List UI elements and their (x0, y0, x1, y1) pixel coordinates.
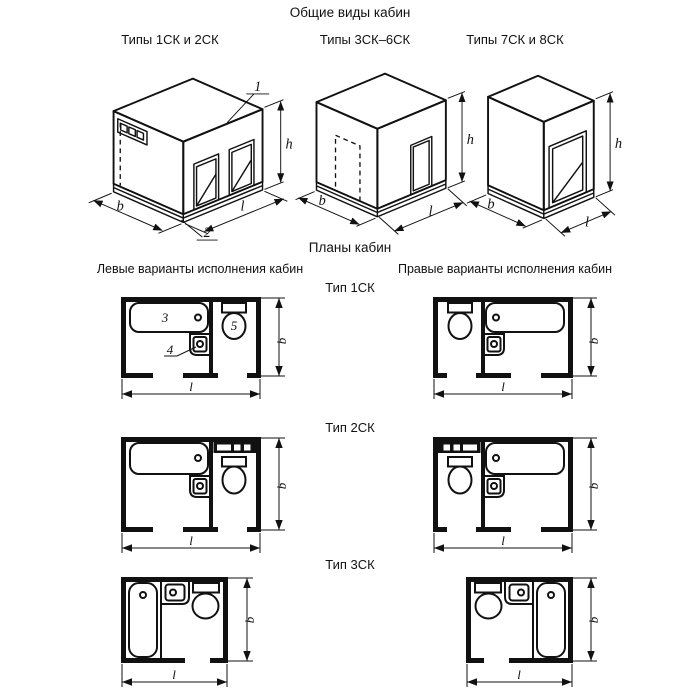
dimension-b: b (228, 578, 257, 661)
caption-types-1sk-2sk: Типы 1СК и 2СК (90, 32, 250, 47)
callout-1-label: 1 (254, 79, 261, 95)
dimension-l: l (122, 379, 260, 399)
caption-types-3sk-6sk: Типы 3СК–6СК (285, 32, 445, 47)
dimension-l: l (434, 533, 572, 553)
washbasin (505, 582, 533, 604)
dim-l-label: l (585, 215, 589, 231)
right-variants-header: Правые варианты исполнения кабин (365, 262, 645, 276)
dimension-b: b (573, 298, 601, 376)
toilet (222, 457, 246, 494)
title-general-views: Общие виды кабин (0, 5, 700, 20)
plan-3sk-left: b l (113, 571, 313, 697)
door-left (194, 154, 219, 210)
vent-block (214, 442, 259, 453)
toilet (475, 583, 502, 619)
dimension-l: l (379, 189, 467, 235)
cabin-box (488, 76, 594, 211)
doorway (549, 131, 586, 208)
dimension-b: b (573, 578, 601, 661)
plan-2sk-right: b l (425, 431, 625, 557)
dimension-h: h (596, 92, 622, 197)
washbasin (190, 476, 210, 497)
vent-grille (118, 119, 147, 145)
dim-b-label: b (487, 196, 494, 212)
dim-l-label: l (189, 533, 193, 548)
dim-b-label: b (586, 337, 601, 344)
cabin-box (114, 79, 263, 215)
dim-l-label: l (172, 667, 176, 682)
type-3sk-label: Тип 3СК (0, 557, 700, 572)
dimension-l: l (185, 191, 287, 233)
washbasin (484, 334, 504, 355)
toilet (448, 457, 472, 494)
drawing-sheet: Общие виды кабин Типы 1СК и 2СК Типы 3СК… (0, 0, 700, 700)
dimension-l: l (122, 664, 227, 687)
callout-washbasin-label: 4 (167, 342, 174, 357)
plan-1sk-right: b l (425, 291, 625, 403)
washbasin (161, 582, 189, 604)
dimension-b: b (261, 438, 289, 530)
title-plans: Планы кабин (0, 240, 700, 255)
dim-b-label: b (274, 482, 289, 489)
dim-b-label: b (586, 616, 601, 623)
plan-1sk-left: 3 4 5 b l (113, 291, 313, 403)
iso-view-1sk-2sk: 1 2 h l b (38, 50, 298, 241)
left-variants-header: Левые варианты исполнения кабин (60, 262, 340, 276)
dimension-b: b (573, 438, 601, 530)
callout-bath-label: 3 (161, 310, 169, 325)
washbasin (484, 476, 504, 497)
dimension-b: b (296, 192, 376, 227)
dim-b-label: b (586, 482, 601, 489)
iso-view-7sk-8sk: h l b (462, 45, 640, 242)
base-plinth (488, 185, 594, 219)
dim-b-label: b (117, 198, 124, 214)
dim-l-label: l (517, 667, 521, 682)
toilet (193, 583, 220, 619)
dimension-l: l (434, 379, 572, 399)
dimension-b: b (261, 298, 289, 376)
dim-b-label: b (242, 616, 257, 623)
toilet (448, 303, 472, 339)
plan-2sk-left: b l (113, 431, 313, 557)
bathtub (130, 443, 208, 474)
dim-h-label: h (615, 136, 622, 152)
plan-3sk-right: b l (425, 571, 625, 697)
dimension-b: b (89, 193, 182, 233)
dim-l-label: l (501, 379, 505, 394)
dimension-l: l (122, 533, 260, 553)
bathtub (533, 582, 565, 660)
dimension-b: b (467, 195, 542, 228)
door-front (411, 137, 432, 195)
dim-l-label: l (501, 533, 505, 548)
vent-block (436, 442, 481, 453)
bathtub (129, 582, 161, 660)
washbasin: 4 (164, 334, 210, 357)
dim-b-label: b (319, 193, 326, 209)
bathtub (486, 303, 564, 332)
dim-l-label: l (429, 203, 433, 219)
bathtub (486, 443, 564, 474)
dimension-l: l (467, 664, 572, 687)
dim-l-label: l (240, 198, 244, 214)
dim-l-label: l (189, 379, 193, 394)
toilet: 5 (222, 303, 246, 339)
callout-toilet-label: 5 (231, 318, 238, 333)
bathtub: 3 (130, 303, 208, 332)
door-right (229, 139, 254, 195)
dim-b-label: b (274, 337, 289, 344)
iso-view-3sk-6sk: h l b (287, 47, 482, 242)
